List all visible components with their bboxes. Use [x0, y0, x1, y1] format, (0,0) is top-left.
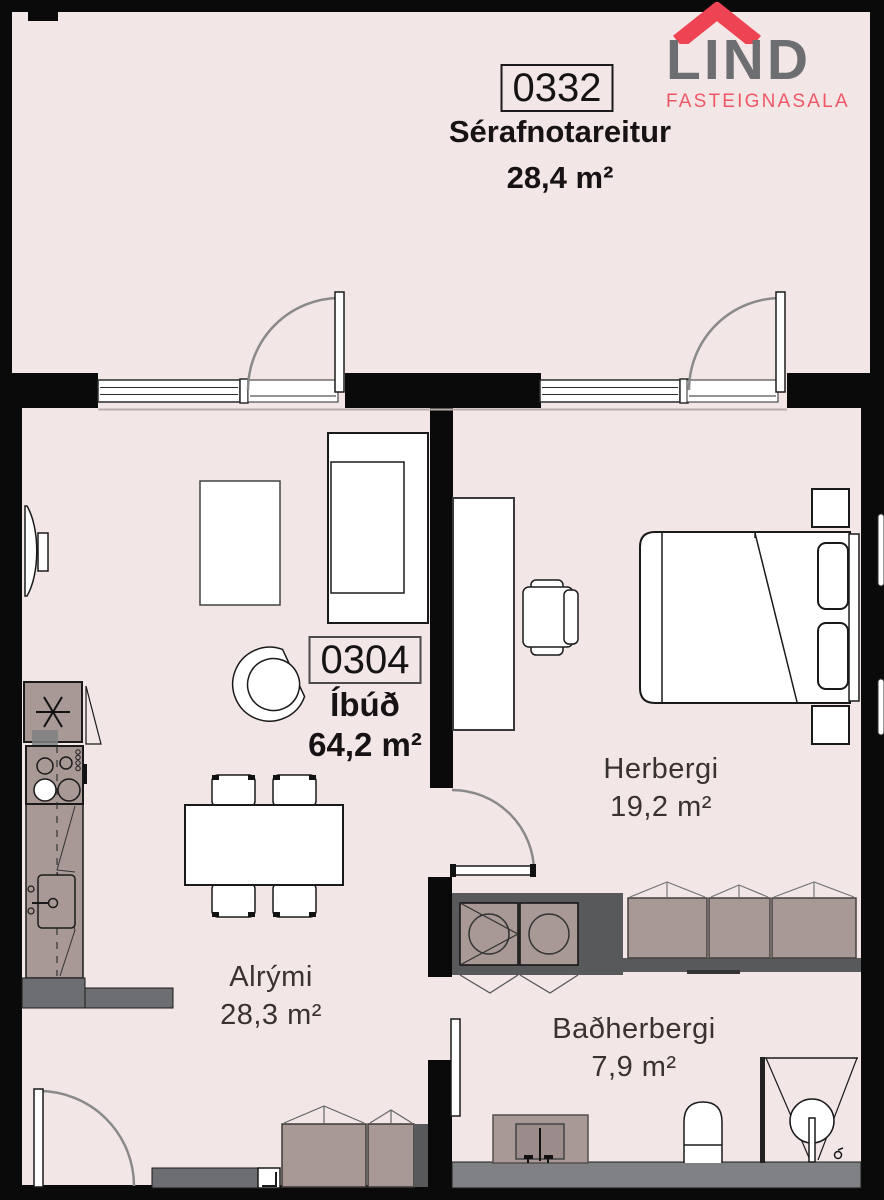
desk-chair — [523, 580, 578, 655]
room-label-badherbergi: Baðherbergi — [552, 1013, 716, 1046]
nightstand-top — [812, 489, 849, 527]
entry-door — [34, 1089, 134, 1187]
hanging-rail-icon — [630, 882, 854, 897]
sofa — [328, 433, 428, 623]
balcony-door-left — [248, 292, 344, 402]
unit-number-serafnotareitur: 0332 — [501, 64, 614, 112]
kitchen-peninsula — [22, 978, 85, 1008]
unit-number-ibud: 0304 — [309, 636, 422, 684]
agency-logo: LIND FASTEIGNASALA — [666, 2, 866, 113]
balcony-window-right — [540, 379, 688, 403]
ibud-size: 64,2 m² — [308, 726, 422, 764]
agency-name: LIND — [666, 32, 866, 89]
entry-wardrobe — [282, 1106, 428, 1187]
dining-table — [185, 805, 343, 885]
bathroom-door — [451, 1019, 460, 1116]
room-label-herbergi: Herbergi — [603, 753, 718, 786]
dining-set — [185, 775, 343, 917]
bed — [640, 532, 859, 703]
shower — [760, 1057, 858, 1163]
room-size-alrymi: 28,3 m² — [220, 999, 322, 1032]
toilet — [684, 1102, 722, 1163]
ibud-label: Íbúð — [330, 686, 400, 724]
armchair — [221, 638, 312, 733]
agency-subtitle: FASTEIGNASALA — [666, 91, 866, 113]
tv — [25, 506, 48, 596]
balcony-door-right — [687, 292, 785, 402]
floor-plan: 0332 Sérafnotareitur 28,4 m² 0304 Íbúð 6… — [0, 0, 884, 1200]
entry-bench — [152, 1168, 280, 1188]
serafnotareitur-size: 28,4 m² — [507, 160, 614, 196]
serafnotareitur-label: Sérafnotareitur — [449, 114, 671, 150]
kitchen-counter — [22, 682, 173, 1008]
fridge-door-swing — [86, 686, 101, 744]
pillow — [818, 623, 848, 689]
bedroom-wardrobe — [585, 882, 861, 974]
room-size-badherbergi: 7,9 m² — [591, 1051, 676, 1084]
bathroom-vanity — [493, 1115, 588, 1163]
room-size-herbergi: 19,2 m² — [610, 791, 712, 824]
coffee-table — [200, 481, 280, 605]
pillow — [818, 543, 848, 609]
bedroom-door — [450, 790, 536, 877]
nightstand-bottom — [812, 706, 849, 744]
desk — [453, 498, 514, 730]
hanging-rail-icon — [284, 1106, 412, 1123]
room-label-alrymi: Alrými — [229, 961, 313, 994]
balcony-window-left — [98, 379, 248, 403]
floor-plan-drawing — [0, 0, 884, 1200]
bathroom-floor-strip — [452, 1162, 861, 1188]
headboard — [849, 534, 859, 701]
laundry-units — [452, 893, 623, 993]
